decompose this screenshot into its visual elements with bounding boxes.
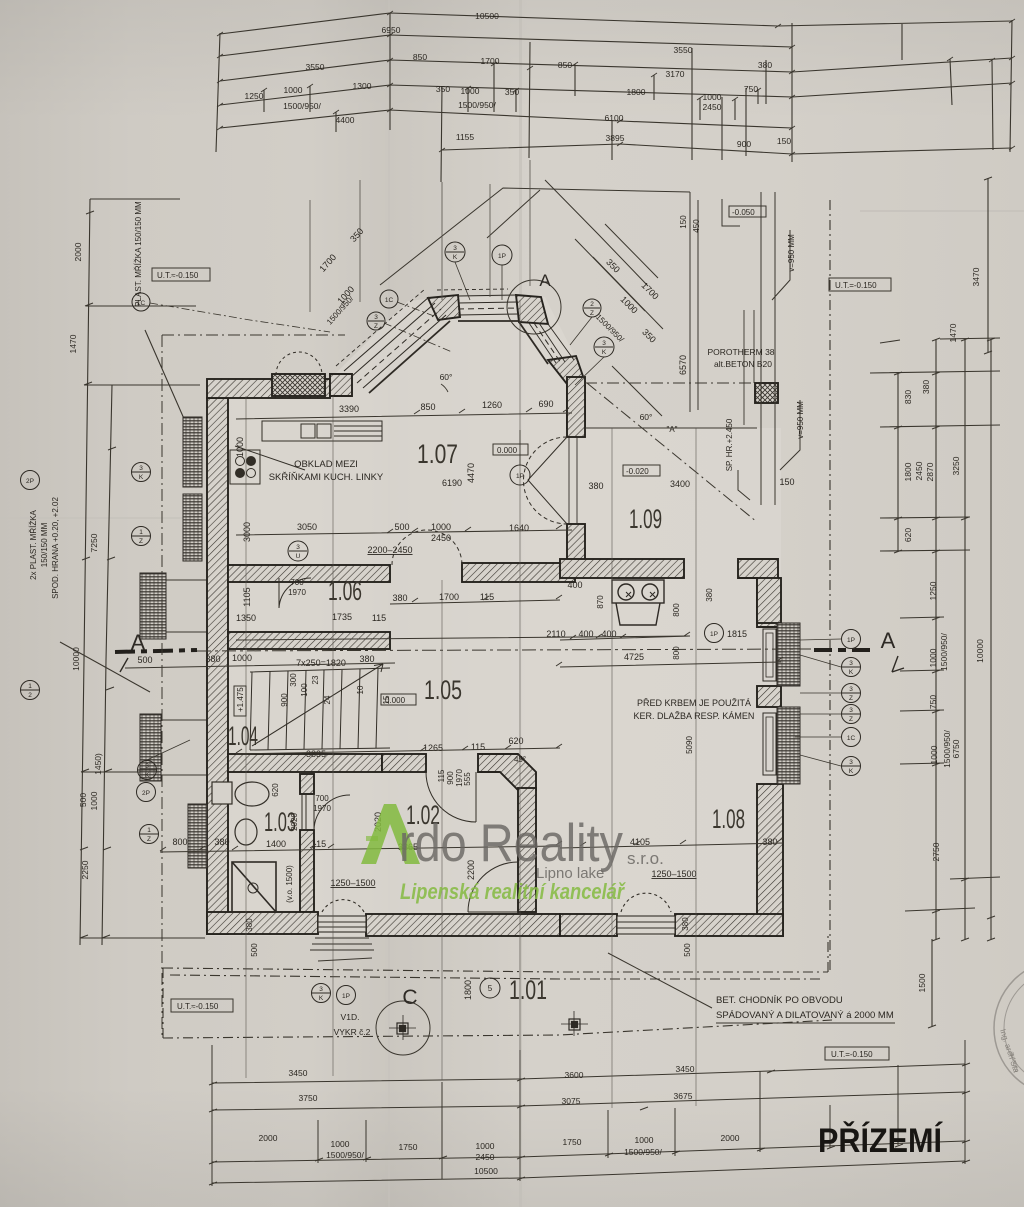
svg-text:830: 830 <box>903 390 913 404</box>
svg-text:0.000: 0.000 <box>385 696 406 705</box>
svg-text:45°: 45° <box>514 755 526 764</box>
svg-text:U: U <box>296 553 301 560</box>
svg-text:2450: 2450 <box>431 533 451 543</box>
svg-text:60°: 60° <box>440 372 453 382</box>
svg-text:1: 1 <box>28 683 32 690</box>
svg-text:500: 500 <box>683 943 692 957</box>
svg-text:700: 700 <box>315 794 329 803</box>
svg-text:1: 1 <box>139 529 143 536</box>
svg-text:SPOD. HRANA +0.20, +2.02: SPOD. HRANA +0.20, +2.02 <box>51 497 60 599</box>
svg-text:900: 900 <box>737 139 751 149</box>
svg-text:2450: 2450 <box>703 102 722 112</box>
svg-text:150: 150 <box>679 215 688 229</box>
svg-text:2870: 2870 <box>925 462 935 481</box>
svg-text:1815: 1815 <box>727 629 747 639</box>
svg-text:400: 400 <box>567 580 582 590</box>
svg-text:3600: 3600 <box>565 1070 584 1080</box>
svg-text:2P: 2P <box>26 478 34 485</box>
svg-text:1260: 1260 <box>482 400 502 410</box>
svg-text:1300: 1300 <box>353 81 372 91</box>
svg-text:380: 380 <box>588 481 603 491</box>
svg-text:PŘED KRBEM JE POUŽITÁ: PŘED KRBEM JE POUŽITÁ <box>637 698 751 708</box>
svg-text:1735: 1735 <box>332 612 352 622</box>
svg-text:3: 3 <box>145 763 149 770</box>
svg-text:1500/950/: 1500/950/ <box>458 100 496 110</box>
svg-text:3450: 3450 <box>676 1064 695 1074</box>
svg-text:2750: 2750 <box>931 842 941 861</box>
svg-text:4105: 4105 <box>630 837 650 847</box>
svg-text:1000: 1000 <box>928 648 938 667</box>
svg-text:1P: 1P <box>710 631 718 638</box>
svg-text:KER. DLAŽBA RESP. KÁMEN: KER. DLAŽBA RESP. KÁMEN <box>634 711 755 721</box>
svg-text:115: 115 <box>437 769 446 782</box>
svg-text:1265: 1265 <box>423 743 443 753</box>
svg-text:5090: 5090 <box>685 736 694 754</box>
svg-text:1.07: 1.07 <box>417 439 458 469</box>
svg-text:1500/950/: 1500/950/ <box>283 101 321 111</box>
svg-text:1450): 1450) <box>93 753 103 775</box>
svg-text:U.T.=-0.150: U.T.=-0.150 <box>831 1050 873 1059</box>
svg-text:3075: 3075 <box>562 1096 581 1106</box>
svg-text:1000: 1000 <box>476 1141 495 1151</box>
svg-text:Z: Z <box>374 323 378 330</box>
svg-text:555: 555 <box>463 772 472 786</box>
svg-text:620: 620 <box>271 783 280 797</box>
svg-text:1970: 1970 <box>288 588 306 597</box>
svg-text:1470: 1470 <box>948 323 958 342</box>
svg-text:1750: 1750 <box>563 1137 582 1147</box>
svg-text:500: 500 <box>394 522 409 532</box>
svg-text:6100: 6100 <box>605 113 624 123</box>
svg-text:2P: 2P <box>142 790 150 797</box>
svg-text:400: 400 <box>601 629 616 639</box>
svg-text:Z: Z <box>147 836 151 843</box>
svg-text:115: 115 <box>312 839 326 849</box>
svg-text:Z: Z <box>849 695 853 702</box>
svg-text:1155: 1155 <box>456 132 475 142</box>
svg-text:v=950 MM: v=950 MM <box>796 401 805 439</box>
svg-text:1000: 1000 <box>89 791 99 810</box>
svg-text:6570: 6570 <box>678 355 688 375</box>
svg-text:1.09: 1.09 <box>629 504 662 534</box>
svg-text:2000: 2000 <box>721 1133 740 1143</box>
svg-text:2x PLAST. MŘÍŽKA: 2x PLAST. MŘÍŽKA <box>29 509 38 579</box>
svg-text:PŘÍZEMÍ: PŘÍZEMÍ <box>818 1122 943 1160</box>
svg-text:3: 3 <box>319 986 323 993</box>
svg-text:6190: 6190 <box>442 478 462 488</box>
svg-text:7x250=1820: 7x250=1820 <box>296 658 346 668</box>
svg-text:380: 380 <box>392 593 407 603</box>
svg-text:PLAST. MŘÍŽKA 150/150 MM: PLAST. MŘÍŽKA 150/150 MM <box>134 201 143 307</box>
svg-text:3895: 3895 <box>606 133 625 143</box>
svg-text:3250: 3250 <box>951 456 961 475</box>
svg-text:1250–1500: 1250–1500 <box>330 878 375 888</box>
svg-text:4725: 4725 <box>624 652 644 662</box>
svg-text:1000: 1000 <box>431 522 451 532</box>
svg-text:"A": "A" <box>666 425 677 434</box>
svg-text:380: 380 <box>214 837 229 847</box>
svg-text:850: 850 <box>413 52 427 62</box>
svg-text:3: 3 <box>374 314 378 321</box>
svg-text:1000: 1000 <box>929 745 939 764</box>
svg-text:1700: 1700 <box>439 592 459 602</box>
svg-text:620: 620 <box>903 528 913 542</box>
svg-text:380: 380 <box>205 654 220 664</box>
svg-text:10000: 10000 <box>975 639 985 663</box>
svg-text:3390: 3390 <box>339 404 359 414</box>
svg-text:1000: 1000 <box>331 1139 350 1149</box>
svg-text:3000: 3000 <box>242 522 252 542</box>
svg-text:1P: 1P <box>516 473 524 480</box>
svg-text:850: 850 <box>558 60 572 70</box>
svg-text:1P: 1P <box>498 253 506 260</box>
svg-text:380: 380 <box>359 654 374 664</box>
svg-text:2: 2 <box>28 692 32 699</box>
svg-text:3400: 3400 <box>670 479 690 489</box>
svg-text:Z: Z <box>139 538 143 545</box>
svg-text:K: K <box>453 254 458 261</box>
svg-text:K: K <box>849 669 854 676</box>
svg-text:3: 3 <box>849 660 853 667</box>
svg-text:K: K <box>145 772 150 779</box>
svg-text:2450: 2450 <box>914 461 924 480</box>
svg-text:K: K <box>319 995 324 1002</box>
svg-text:800: 800 <box>172 837 187 847</box>
svg-text:1P: 1P <box>847 637 855 644</box>
svg-text:4470: 4470 <box>466 463 476 483</box>
svg-text:620: 620 <box>508 736 523 746</box>
svg-text:23: 23 <box>311 675 320 684</box>
svg-text:115: 115 <box>372 613 386 623</box>
svg-text:10500: 10500 <box>475 11 499 21</box>
svg-text:U.T.≈-0.150: U.T.≈-0.150 <box>157 271 199 280</box>
svg-text:1970: 1970 <box>313 804 331 813</box>
svg-text:800: 800 <box>672 646 681 660</box>
svg-text:3: 3 <box>453 245 457 252</box>
svg-text:3: 3 <box>602 340 606 347</box>
svg-text:5: 5 <box>488 984 493 993</box>
svg-text:+1.475: +1.475 <box>236 687 245 712</box>
svg-text:1250–1500: 1250–1500 <box>651 869 696 879</box>
svg-text:870: 870 <box>596 595 605 609</box>
svg-text:1750: 1750 <box>399 1142 418 1152</box>
svg-text:BET. CHODNÍK PO OBVODU: BET. CHODNÍK PO OBVODU <box>716 995 843 1006</box>
svg-text:1.06: 1.06 <box>328 576 362 606</box>
svg-text:A: A <box>131 630 146 655</box>
svg-text:3550: 3550 <box>306 62 325 72</box>
svg-text:1: 1 <box>147 827 151 834</box>
svg-text:850: 850 <box>420 402 435 412</box>
svg-text:1500/950/: 1500/950/ <box>939 632 949 670</box>
svg-text:6750: 6750 <box>951 739 961 758</box>
svg-text:1350: 1350 <box>236 613 256 623</box>
svg-text:K: K <box>602 349 607 356</box>
svg-text:1800: 1800 <box>627 87 646 97</box>
svg-text:3: 3 <box>849 686 853 693</box>
svg-text:A: A <box>881 628 896 653</box>
svg-text:-0.050: -0.050 <box>732 208 755 217</box>
svg-text:900: 900 <box>280 693 289 707</box>
svg-text:2: 2 <box>590 301 594 308</box>
svg-text:690: 690 <box>538 399 553 409</box>
svg-text:1800: 1800 <box>463 980 473 1000</box>
svg-text:750: 750 <box>744 84 758 94</box>
svg-text:3835: 3835 <box>306 749 326 759</box>
svg-text:3: 3 <box>849 759 853 766</box>
svg-text:1.04: 1.04 <box>228 721 258 751</box>
svg-text:1000: 1000 <box>703 92 722 102</box>
svg-text:500: 500 <box>78 793 88 807</box>
svg-text:2450: 2450 <box>476 1152 495 1162</box>
svg-text:1700: 1700 <box>481 56 500 66</box>
svg-text:s.r.o.: s.r.o. <box>627 849 664 868</box>
svg-text:3470: 3470 <box>971 267 981 286</box>
svg-text:380: 380 <box>705 588 714 602</box>
svg-text:1000: 1000 <box>232 653 252 663</box>
svg-text:350: 350 <box>436 84 450 94</box>
svg-text:1470: 1470 <box>68 334 78 353</box>
svg-text:700: 700 <box>290 578 304 587</box>
svg-text:24: 24 <box>323 695 332 704</box>
svg-text:10: 10 <box>356 685 365 694</box>
svg-text:350: 350 <box>505 87 519 97</box>
svg-text:K: K <box>849 768 854 775</box>
svg-text:7250: 7250 <box>89 533 99 552</box>
svg-text:500: 500 <box>137 655 152 665</box>
svg-text:3550: 3550 <box>674 45 693 55</box>
svg-text:10000: 10000 <box>71 647 81 671</box>
svg-text:380: 380 <box>921 380 931 394</box>
svg-text:1.05: 1.05 <box>424 675 462 705</box>
svg-text:1800: 1800 <box>903 462 913 481</box>
svg-text:380: 380 <box>681 917 690 931</box>
svg-text:3: 3 <box>296 544 300 551</box>
svg-text:10500: 10500 <box>474 1166 498 1176</box>
svg-text:1000: 1000 <box>635 1135 654 1145</box>
svg-text:750: 750 <box>928 695 938 709</box>
svg-text:2000: 2000 <box>259 1133 278 1143</box>
svg-text:U.T.≈-0.150: U.T.≈-0.150 <box>177 1002 219 1011</box>
svg-text:150: 150 <box>777 136 791 146</box>
svg-text:K: K <box>139 474 144 481</box>
svg-text:1400: 1400 <box>266 839 286 849</box>
svg-text:SKŘÍŇKAMI KUCH. LINKY: SKŘÍŇKAMI KUCH. LINKY <box>269 472 384 483</box>
svg-text:1.01: 1.01 <box>509 975 547 1005</box>
svg-text:1500: 1500 <box>917 973 927 992</box>
svg-text:POROTHERM 38: POROTHERM 38 <box>707 347 774 357</box>
svg-text:U.T.=-0.150: U.T.=-0.150 <box>835 281 877 290</box>
svg-text:v=950 MM: v=950 MM <box>787 234 796 272</box>
svg-text:OBKLAD MEZI: OBKLAD MEZI <box>294 459 358 470</box>
svg-text:VYKR č.2: VYKR č.2 <box>334 1027 371 1037</box>
svg-text:6950: 6950 <box>382 25 401 35</box>
svg-text:C: C <box>402 986 417 1009</box>
svg-text:2000: 2000 <box>73 242 83 261</box>
svg-text:alt.BETON B20: alt.BETON B20 <box>714 359 772 369</box>
svg-text:1250: 1250 <box>928 581 938 600</box>
svg-text:3170: 3170 <box>666 69 685 79</box>
svg-text:100: 100 <box>300 683 309 697</box>
svg-text:60°: 60° <box>640 412 653 422</box>
svg-text:1.08: 1.08 <box>712 804 745 834</box>
svg-text:1500/950/: 1500/950/ <box>624 1147 662 1157</box>
svg-text:3450: 3450 <box>289 1068 308 1078</box>
svg-text:1250: 1250 <box>245 91 264 101</box>
svg-text:380: 380 <box>758 60 772 70</box>
svg-text:1000: 1000 <box>461 86 480 96</box>
svg-text:Z: Z <box>849 716 853 723</box>
svg-text:1000: 1000 <box>235 437 245 457</box>
svg-text:380: 380 <box>762 837 777 847</box>
svg-text:900: 900 <box>446 771 455 785</box>
svg-text:150: 150 <box>779 477 794 487</box>
svg-text:3: 3 <box>849 707 853 714</box>
svg-text:115: 115 <box>471 742 485 752</box>
svg-text:150/150 MM: 150/150 MM <box>40 522 49 567</box>
svg-text:1105: 1105 <box>242 587 252 606</box>
svg-text:450: 450 <box>692 219 701 233</box>
svg-text:3675: 3675 <box>674 1091 693 1101</box>
svg-text:Lipenská realitní kancelář: Lipenská realitní kancelář <box>400 879 626 904</box>
svg-text:SP. HR.+2.450: SP. HR.+2.450 <box>725 418 734 471</box>
svg-text:800: 800 <box>672 603 681 617</box>
svg-text:1500/950/: 1500/950/ <box>326 1150 364 1160</box>
svg-text:-0.020: -0.020 <box>626 467 649 476</box>
svg-text:V1D.: V1D. <box>341 1012 360 1022</box>
svg-text:0.000: 0.000 <box>497 446 518 455</box>
svg-text:500: 500 <box>250 943 259 957</box>
svg-text:1640: 1640 <box>509 523 529 533</box>
svg-text:300: 300 <box>289 673 298 687</box>
svg-text:1000: 1000 <box>284 85 303 95</box>
svg-text:(v.o. 1500): (v.o. 1500) <box>285 865 294 903</box>
svg-text:3: 3 <box>139 465 143 472</box>
svg-text:Z: Z <box>590 310 594 317</box>
svg-text:SPÁDOVANÝ A DILATOVANÝ á 2000: SPÁDOVANÝ A DILATOVANÝ á 2000 MM <box>716 1010 894 1021</box>
svg-text:3750: 3750 <box>299 1093 318 1103</box>
svg-text:4400: 4400 <box>336 115 355 125</box>
svg-text:1C: 1C <box>847 735 856 742</box>
svg-text:A: A <box>539 271 551 290</box>
svg-text:3050: 3050 <box>297 522 317 532</box>
svg-text:2200–2450: 2200–2450 <box>367 545 412 555</box>
svg-text:2020: 2020 <box>290 813 299 831</box>
svg-text:400: 400 <box>578 629 593 639</box>
svg-text:380: 380 <box>245 918 254 932</box>
svg-text:1C: 1C <box>137 300 146 307</box>
svg-text:1P: 1P <box>342 993 350 1000</box>
svg-text:2250: 2250 <box>80 860 90 879</box>
svg-text:1C: 1C <box>385 297 394 304</box>
